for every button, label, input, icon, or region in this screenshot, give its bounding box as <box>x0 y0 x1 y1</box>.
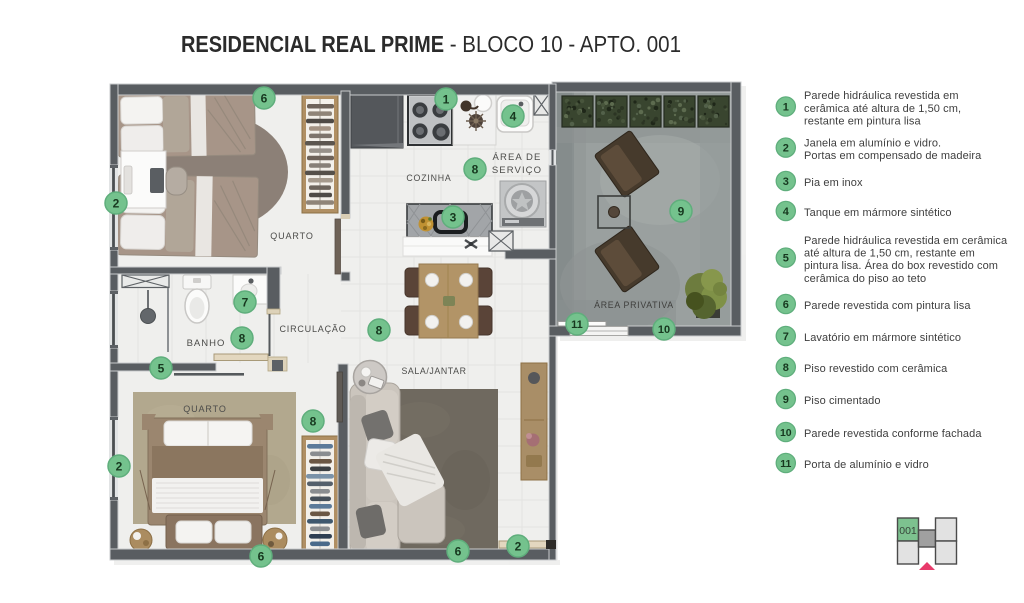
svg-text:5: 5 <box>158 361 165 375</box>
svg-text:CIRCULAÇÃO: CIRCULAÇÃO <box>279 324 346 334</box>
svg-text:4: 4 <box>510 109 517 123</box>
svg-text:3: 3 <box>450 210 457 224</box>
svg-text:Tanque em mármore sintético: Tanque em mármore sintético <box>804 207 952 219</box>
svg-text:9: 9 <box>678 204 685 218</box>
svg-text:2: 2 <box>116 459 123 473</box>
svg-text:6: 6 <box>783 299 789 311</box>
svg-text:Portas em compensado de madeir: Portas em compensado de madeira <box>804 150 982 162</box>
svg-text:Pia em inox: Pia em inox <box>804 177 863 189</box>
svg-text:8: 8 <box>310 414 317 428</box>
svg-text:4: 4 <box>783 206 790 218</box>
svg-text:Piso cimentado: Piso cimentado <box>804 395 881 407</box>
svg-text:Piso revestido com cerâmica: Piso revestido com cerâmica <box>804 363 948 375</box>
svg-text:10: 10 <box>658 324 670 336</box>
svg-text:1: 1 <box>443 92 450 106</box>
svg-text:6: 6 <box>261 91 268 105</box>
svg-text:8: 8 <box>472 162 479 176</box>
svg-text:restante em pintura lisa: restante em pintura lisa <box>804 115 922 127</box>
svg-text:2: 2 <box>113 196 120 210</box>
svg-text:2: 2 <box>515 539 522 553</box>
svg-text:2: 2 <box>783 142 789 154</box>
svg-text:RESIDENCIAL REAL PRIME - BLOCO: RESIDENCIAL REAL PRIME - BLOCO 10 - APTO… <box>181 31 681 57</box>
svg-text:Parede revestida conforme fach: Parede revestida conforme fachada <box>804 428 982 440</box>
svg-text:ÁREA PRIVATIVA: ÁREA PRIVATIVA <box>594 300 674 310</box>
svg-text:7: 7 <box>242 295 249 309</box>
svg-text:8: 8 <box>783 362 789 374</box>
svg-text:Janela em alumínio e vidro.: Janela em alumínio e vidro. <box>804 138 941 150</box>
svg-text:3: 3 <box>783 176 789 188</box>
svg-text:Parede revestida com pintura l: Parede revestida com pintura lisa <box>804 300 971 312</box>
svg-text:cerâmica até altura de 1,50 cm: cerâmica até altura de 1,50 cm, <box>804 103 961 115</box>
svg-text:SALA/JANTAR: SALA/JANTAR <box>401 366 466 376</box>
svg-text:Parede hidráulica revestida em: Parede hidráulica revestida em <box>804 90 959 102</box>
svg-text:9: 9 <box>783 394 789 406</box>
svg-text:BANHO: BANHO <box>187 338 226 349</box>
svg-text:Porta de alumínio e vidro: Porta de alumínio e vidro <box>804 459 929 471</box>
svg-text:11: 11 <box>780 458 791 470</box>
svg-text:1: 1 <box>783 101 789 113</box>
svg-text:pintura lisa. Área do box reve: pintura lisa. Área do box revestido com <box>804 259 998 272</box>
svg-text:8: 8 <box>239 331 246 345</box>
svg-text:6: 6 <box>455 544 462 558</box>
svg-text:SERVIÇO: SERVIÇO <box>492 165 542 176</box>
svg-text:10: 10 <box>780 427 792 439</box>
svg-text:001: 001 <box>899 525 917 537</box>
svg-text:Parede hidráulica revestida em: Parede hidráulica revestida em cerâmica <box>804 235 1008 247</box>
svg-text:8: 8 <box>376 323 383 337</box>
svg-text:7: 7 <box>783 331 789 343</box>
svg-text:5: 5 <box>783 252 789 264</box>
svg-text:COZINHA: COZINHA <box>406 173 451 183</box>
svg-text:QUARTO: QUARTO <box>183 404 227 414</box>
svg-text:11: 11 <box>571 319 583 331</box>
svg-text:cerâmica do piso ao teto: cerâmica do piso ao teto <box>804 273 926 285</box>
svg-text:ÁREA DE: ÁREA DE <box>493 152 542 163</box>
svg-text:6: 6 <box>258 549 265 563</box>
svg-text:Lavatório em mármore sintético: Lavatório em mármore sintético <box>804 332 961 344</box>
svg-text:até altura de 1,50 cm, restant: até altura de 1,50 cm, restante em <box>804 248 975 260</box>
svg-text:QUARTO: QUARTO <box>270 231 314 241</box>
